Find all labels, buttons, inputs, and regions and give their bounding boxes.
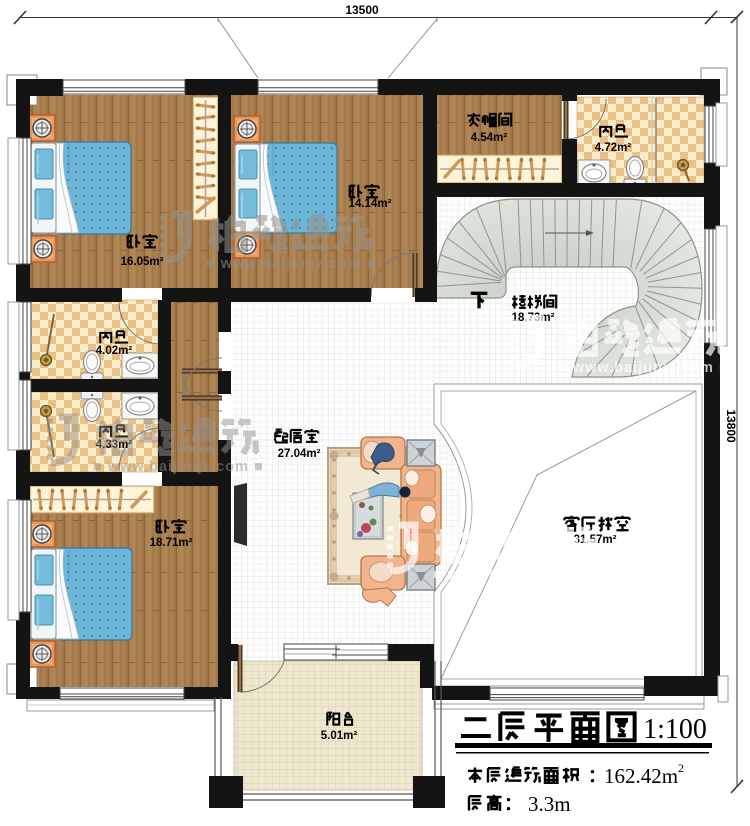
svg-text:5.01m²: 5.01m²: [321, 730, 358, 742]
svg-text:4.02m²: 4.02m²: [96, 345, 133, 357]
svg-text:■ www.baijunjz.com ■: ■ www.baijunjz.com ■: [93, 459, 264, 475]
svg-text:13800: 13800: [724, 409, 738, 443]
svg-text:4.72m²: 4.72m²: [595, 142, 632, 154]
svg-text:2: 2: [678, 761, 684, 775]
svg-text:16.05m²: 16.05m²: [121, 256, 164, 268]
svg-text:1:100: 1:100: [643, 714, 707, 745]
svg-text:■ www.baijunjz.com ■: ■ www.baijunjz.com ■: [206, 256, 377, 272]
svg-text:■ www.baijunjz.com ■: ■ www.baijunjz.com ■: [558, 360, 729, 376]
svg-text:18.71m²: 18.71m²: [150, 537, 193, 549]
svg-text:：: ：: [504, 794, 522, 814]
svg-text:13500: 13500: [345, 3, 379, 17]
svg-text:14.14m²: 14.14m²: [349, 198, 392, 210]
svg-text:3.3m: 3.3m: [528, 792, 571, 816]
svg-text:4.54m²: 4.54m²: [471, 132, 508, 144]
svg-text:■ www.baijunjz.com ■: ■ www.baijunjz.com ■: [433, 567, 604, 583]
svg-text:27.04m²: 27.04m²: [278, 448, 321, 460]
svg-text:162.42m: 162.42m: [604, 764, 678, 788]
